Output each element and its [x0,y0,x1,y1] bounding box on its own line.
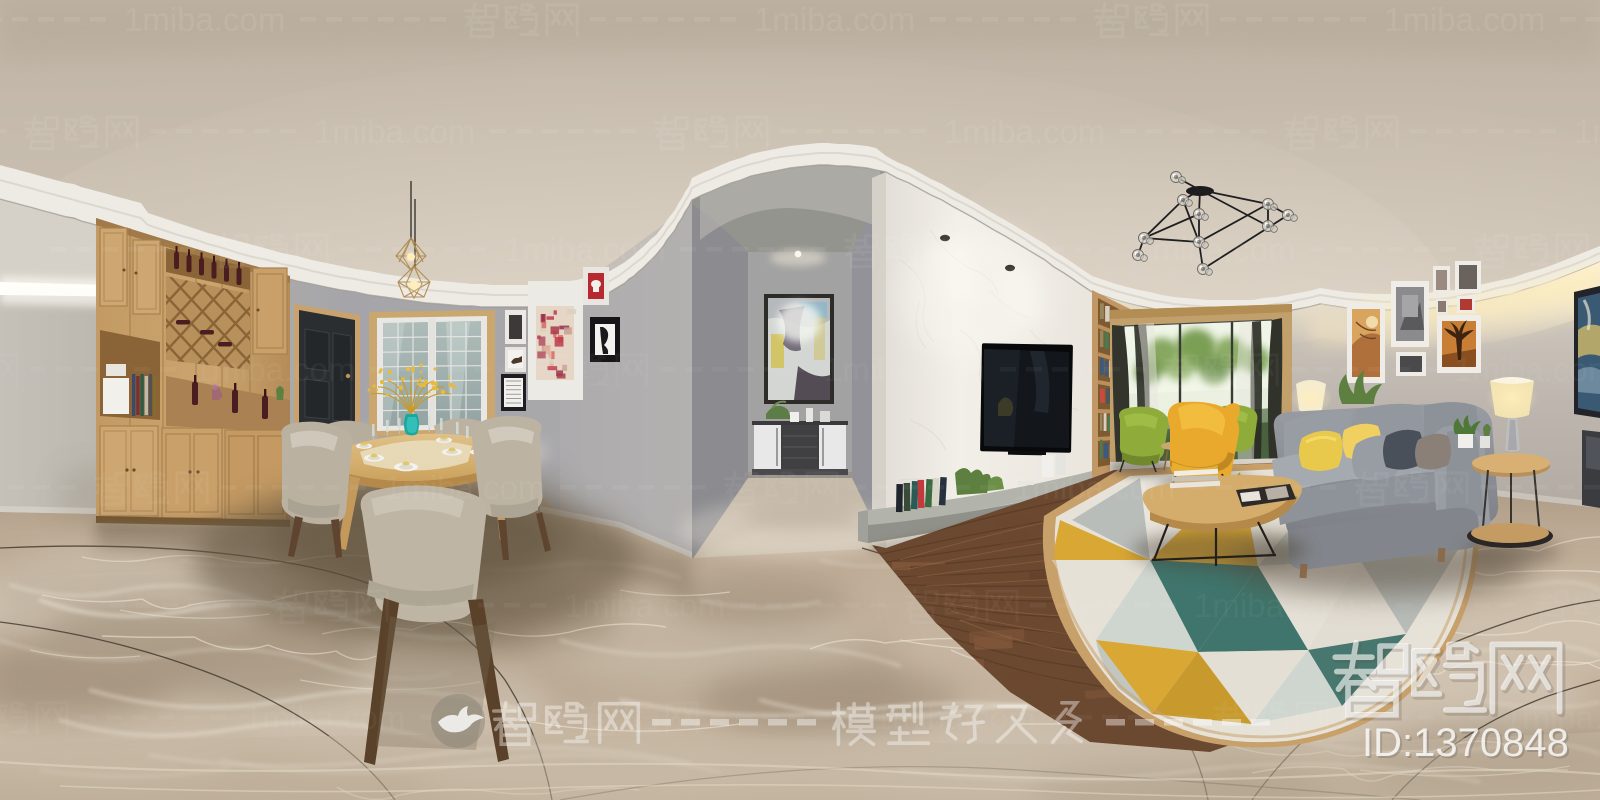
svg-text:1miba.com: 1miba.com [1014,469,1175,506]
svg-text:1miba.com: 1miba.com [1194,587,1355,624]
svg-text:1miba.com: 1miba.com [314,113,475,150]
svg-text:1miba.com: 1miba.com [384,469,545,506]
svg-text:1miba.com: 1miba.com [1454,351,1600,388]
svg-text:1miba.com: 1miba.com [564,587,725,624]
svg-text:1miba.com: 1miba.com [194,351,355,388]
svg-text:1miba.com: 1miba.com [944,113,1105,150]
svg-text:1miba.com: 1miba.com [1384,1,1545,38]
svg-text:1miba.com: 1miba.com [1134,231,1295,268]
svg-text:1miba.com: 1miba.com [754,1,915,38]
svg-text:1miba.com: 1miba.com [244,699,405,736]
svg-text:ID:1370848: ID:1370848 [1362,721,1569,765]
svg-text:1miba.com: 1miba.com [124,1,285,38]
svg-text:1miba.com: 1miba.com [824,351,985,388]
svg-text:1miba.com: 1miba.com [504,231,665,268]
svg-text:1miba.com: 1miba.com [1574,113,1600,150]
